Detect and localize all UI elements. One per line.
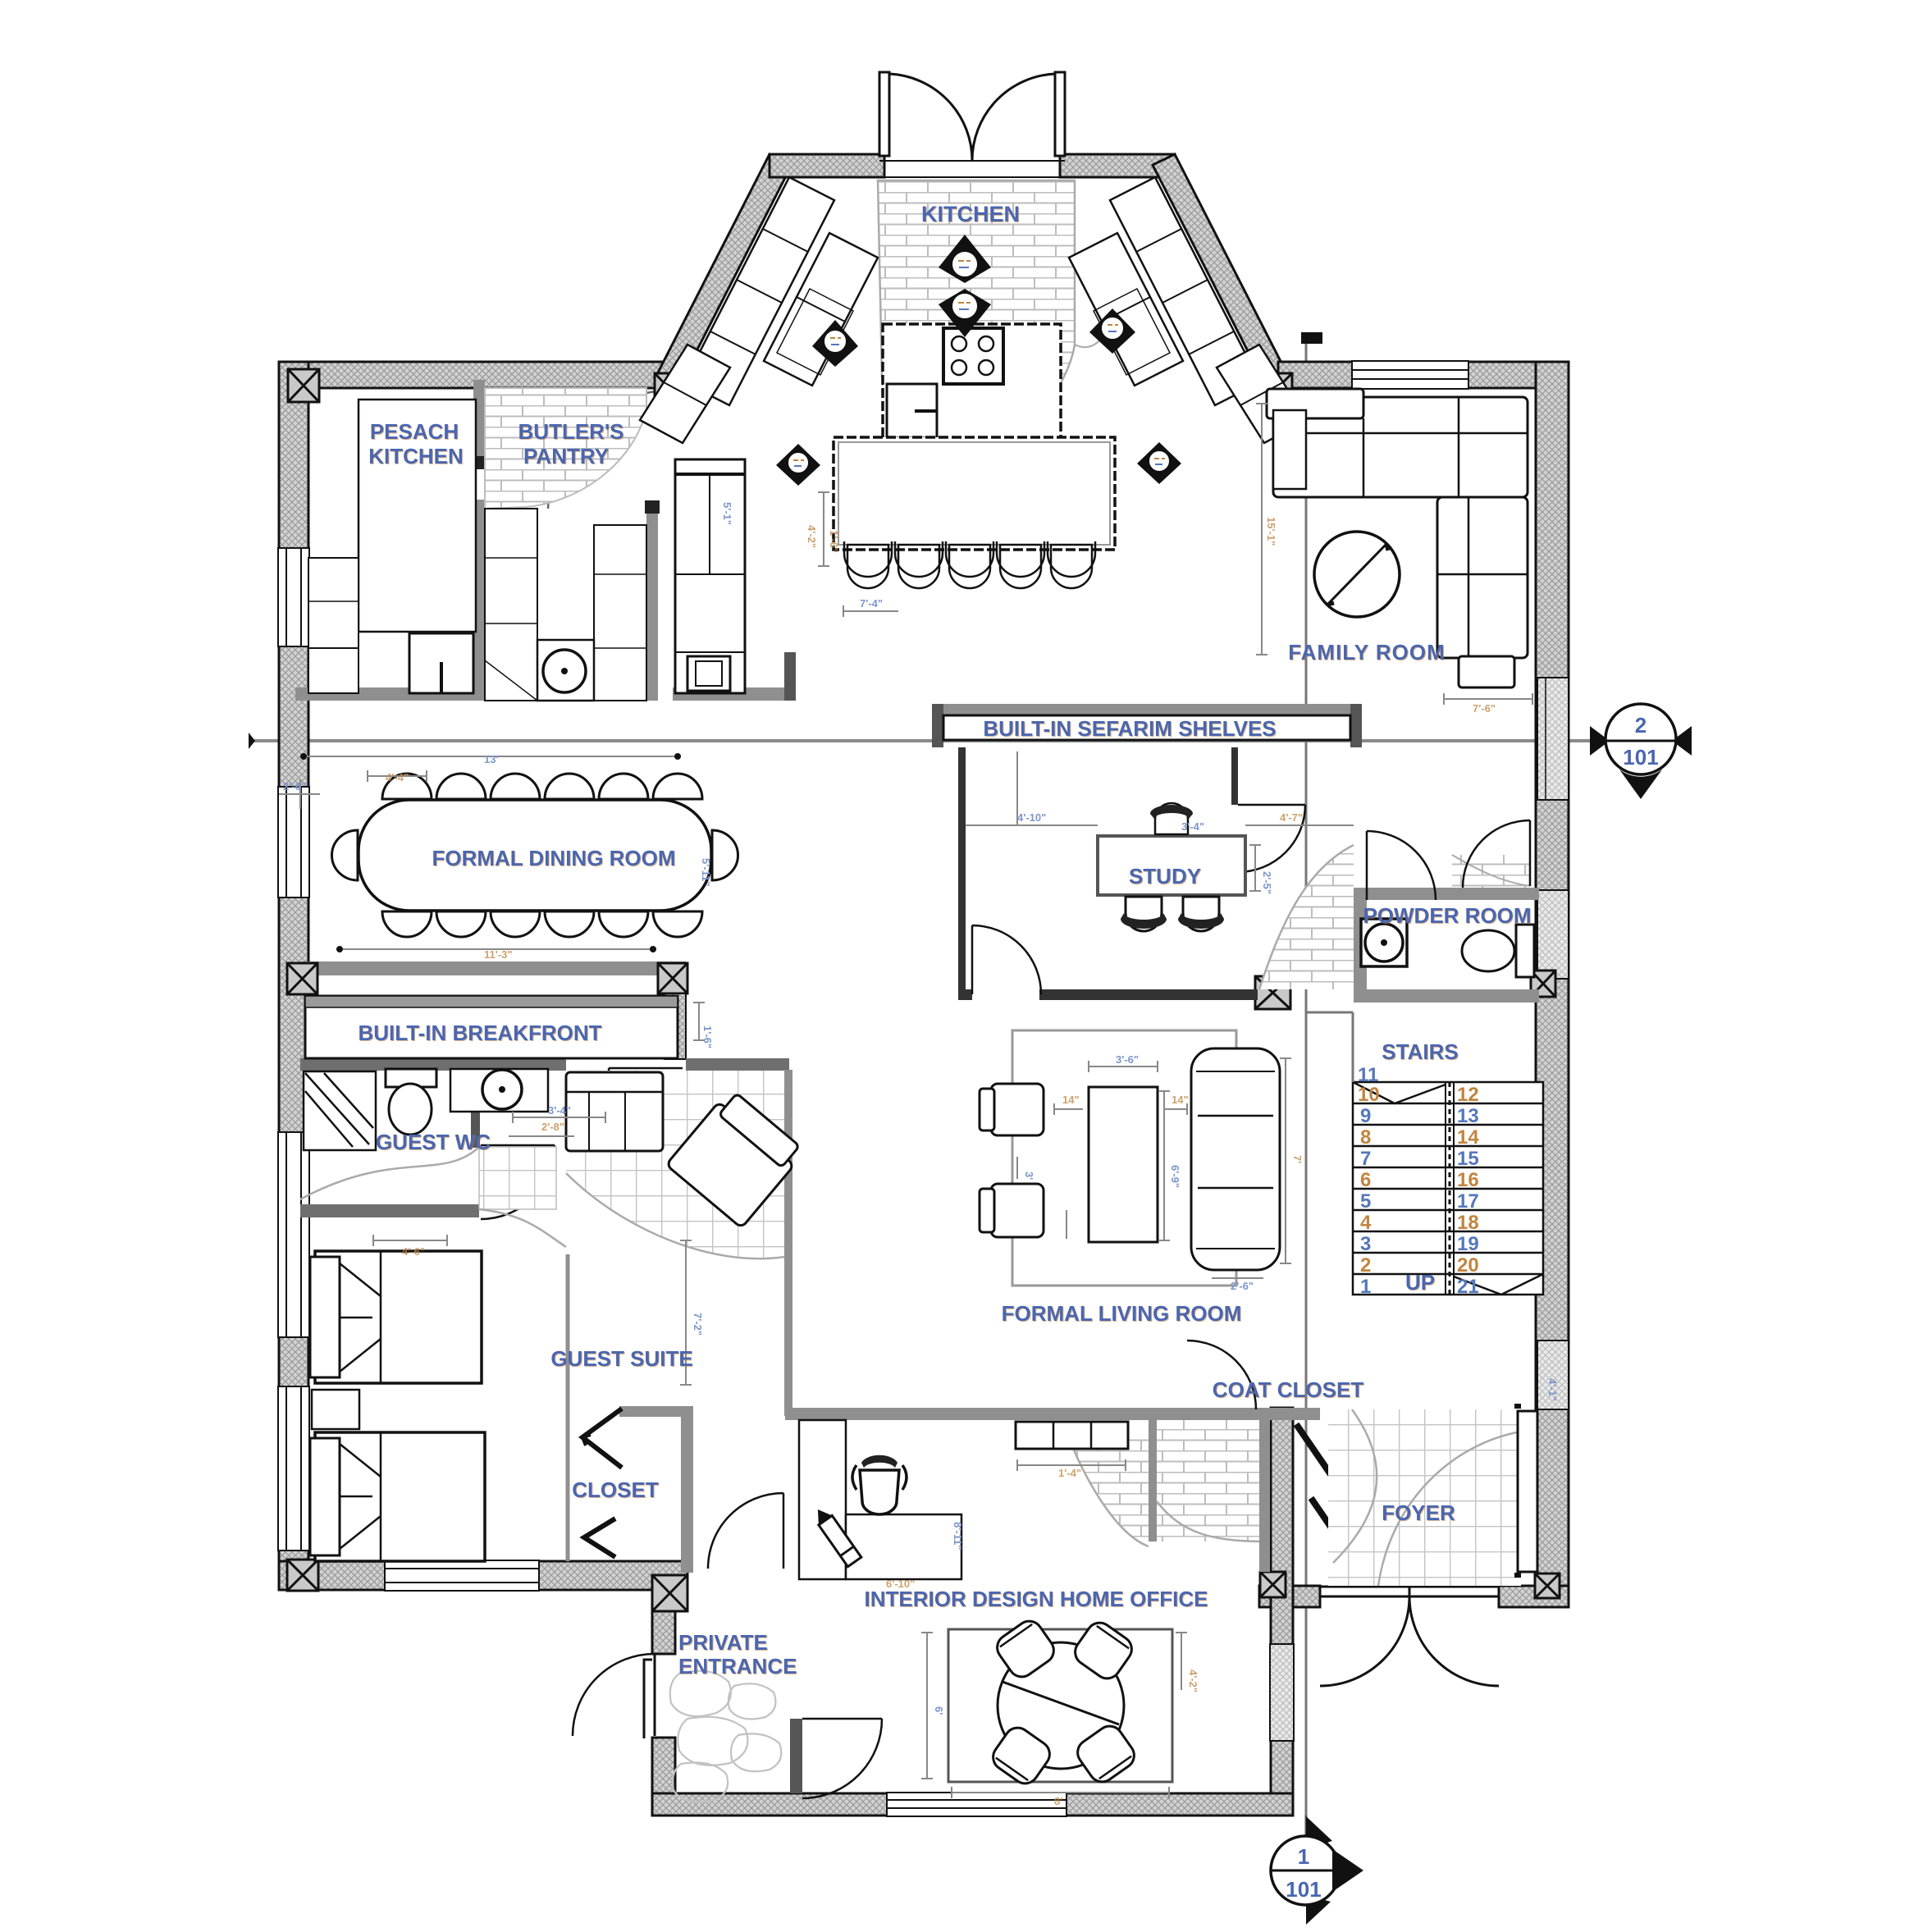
- svg-text:10: 10: [1358, 1084, 1380, 1106]
- svg-text:2: 2: [1635, 713, 1647, 738]
- svg-text:FORMAL LIVING ROOM: FORMAL LIVING ROOM: [1002, 1301, 1242, 1326]
- svg-text:5'-11": 5'-11": [700, 858, 712, 887]
- svg-text:PRIVATE: PRIVATE: [678, 1630, 768, 1655]
- svg-text:1'-6": 1'-6": [701, 1025, 714, 1048]
- svg-text:5: 5: [1360, 1190, 1371, 1213]
- svg-text:6'-10": 6'-10": [886, 1578, 915, 1590]
- svg-text:PANTRY: PANTRY: [523, 444, 609, 468]
- svg-text:4'-1": 4'-1": [1546, 1378, 1559, 1401]
- svg-text:FAMILY ROOM: FAMILY ROOM: [1288, 640, 1446, 665]
- svg-text:CLOSET: CLOSET: [572, 1478, 659, 1502]
- svg-text:6'-9": 6'-9": [1169, 1165, 1181, 1188]
- svg-text:KITCHEN: KITCHEN: [921, 202, 1020, 226]
- svg-text:3': 3': [1023, 1172, 1035, 1180]
- svg-text:2'-6": 2'-6": [1231, 1280, 1254, 1292]
- svg-text:6': 6': [933, 1706, 945, 1715]
- svg-text:3'-4": 3'-4": [1181, 820, 1204, 833]
- svg-text:3: 3: [1360, 1233, 1371, 1255]
- svg-text:7': 7': [1291, 1155, 1304, 1163]
- svg-text:POWDER ROOM: POWDER ROOM: [1363, 903, 1531, 928]
- svg-text:GUEST WC: GUEST WC: [376, 1130, 491, 1154]
- svg-text:101: 101: [1286, 1877, 1321, 1902]
- svg-text:14": 14": [1062, 1094, 1080, 1106]
- svg-text:9: 9: [1360, 1105, 1371, 1127]
- svg-text:8: 8: [1360, 1126, 1371, 1149]
- svg-text:ENTRANCE: ENTRANCE: [678, 1654, 797, 1679]
- svg-text:COAT CLOSET: COAT CLOSET: [1213, 1377, 1364, 1402]
- svg-text:13: 13: [1457, 1105, 1479, 1127]
- svg-text:1: 1: [1360, 1276, 1371, 1298]
- svg-text:2'-5": 2'-5": [1261, 871, 1273, 894]
- svg-text:1'-6": 1'-6": [828, 530, 840, 553]
- svg-text:11: 11: [1358, 1064, 1378, 1086]
- svg-text:BUILT-IN SEFARIM SHELVES: BUILT-IN SEFARIM SHELVES: [983, 716, 1276, 741]
- svg-text:1: 1: [1298, 1844, 1309, 1869]
- svg-text:14: 14: [1457, 1126, 1479, 1149]
- svg-text:7: 7: [1360, 1148, 1371, 1170]
- svg-text:2'-8": 2'-8": [541, 1121, 564, 1133]
- svg-text:4'-7": 4'-7": [1280, 811, 1303, 824]
- svg-text:16: 16: [1457, 1169, 1479, 1191]
- svg-text:KITCHEN: KITCHEN: [368, 444, 464, 468]
- svg-text:4'-6": 4'-6": [402, 1245, 425, 1258]
- svg-text:3'-4": 3'-4": [548, 1104, 571, 1117]
- svg-text:GUEST SUITE: GUEST SUITE: [550, 1346, 692, 1371]
- svg-text:6: 6: [1360, 1169, 1371, 1191]
- svg-text:12: 12: [1457, 1084, 1479, 1106]
- svg-text:INTERIOR DESIGN HOME OFFICE: INTERIOR DESIGN HOME OFFICE: [865, 1587, 1208, 1611]
- svg-text:17: 17: [1457, 1190, 1479, 1213]
- svg-text:1'-4": 1'-4": [1058, 1467, 1081, 1479]
- svg-text:5'-1": 5'-1": [721, 502, 733, 525]
- svg-text:PESACH: PESACH: [370, 419, 459, 444]
- svg-text:19: 19: [1457, 1233, 1479, 1255]
- svg-text:FOYER: FOYER: [1382, 1500, 1455, 1525]
- svg-text:20: 20: [1457, 1254, 1479, 1277]
- svg-text:15'-1": 15'-1": [1265, 517, 1277, 546]
- svg-text:8'-11": 8'-11": [952, 1522, 964, 1551]
- svg-text:4'-2": 4'-2": [806, 525, 818, 548]
- svg-text:13': 13': [484, 753, 499, 765]
- svg-text:18: 18: [1457, 1212, 1479, 1234]
- svg-text:2: 2: [1360, 1254, 1371, 1277]
- svg-text:101: 101: [1623, 745, 1658, 770]
- svg-text:7'-4": 7'-4": [860, 597, 883, 610]
- svg-text:STAIRS: STAIRS: [1382, 1039, 1458, 1064]
- svg-text:11'-3": 11'-3": [484, 948, 513, 961]
- svg-text:BUTLER'S: BUTLER'S: [518, 419, 624, 444]
- svg-text:21: 21: [1457, 1276, 1479, 1298]
- svg-text:15: 15: [1457, 1148, 1479, 1170]
- svg-text:14": 14": [1172, 1094, 1189, 1106]
- svg-text:2'-6": 2'-6": [283, 780, 306, 792]
- svg-text:UP: UP: [1405, 1270, 1435, 1295]
- svg-text:7'-6": 7'-6": [1473, 702, 1496, 715]
- svg-text:4'-4": 4'-4": [386, 771, 409, 783]
- svg-text:FORMAL DINING ROOM: FORMAL DINING ROOM: [432, 846, 675, 870]
- svg-text:4'-10": 4'-10": [1017, 811, 1046, 824]
- svg-text:3'-6": 3'-6": [1116, 1053, 1139, 1066]
- svg-text:4: 4: [1360, 1212, 1372, 1234]
- svg-text:8': 8': [1054, 1795, 1062, 1807]
- svg-text:4'-2": 4'-2": [1187, 1669, 1199, 1692]
- svg-text:STUDY: STUDY: [1129, 864, 1201, 888]
- svg-text:7'-2": 7'-2": [692, 1313, 704, 1336]
- svg-text:BUILT-IN BREAKFRONT: BUILT-IN BREAKFRONT: [358, 1021, 601, 1045]
